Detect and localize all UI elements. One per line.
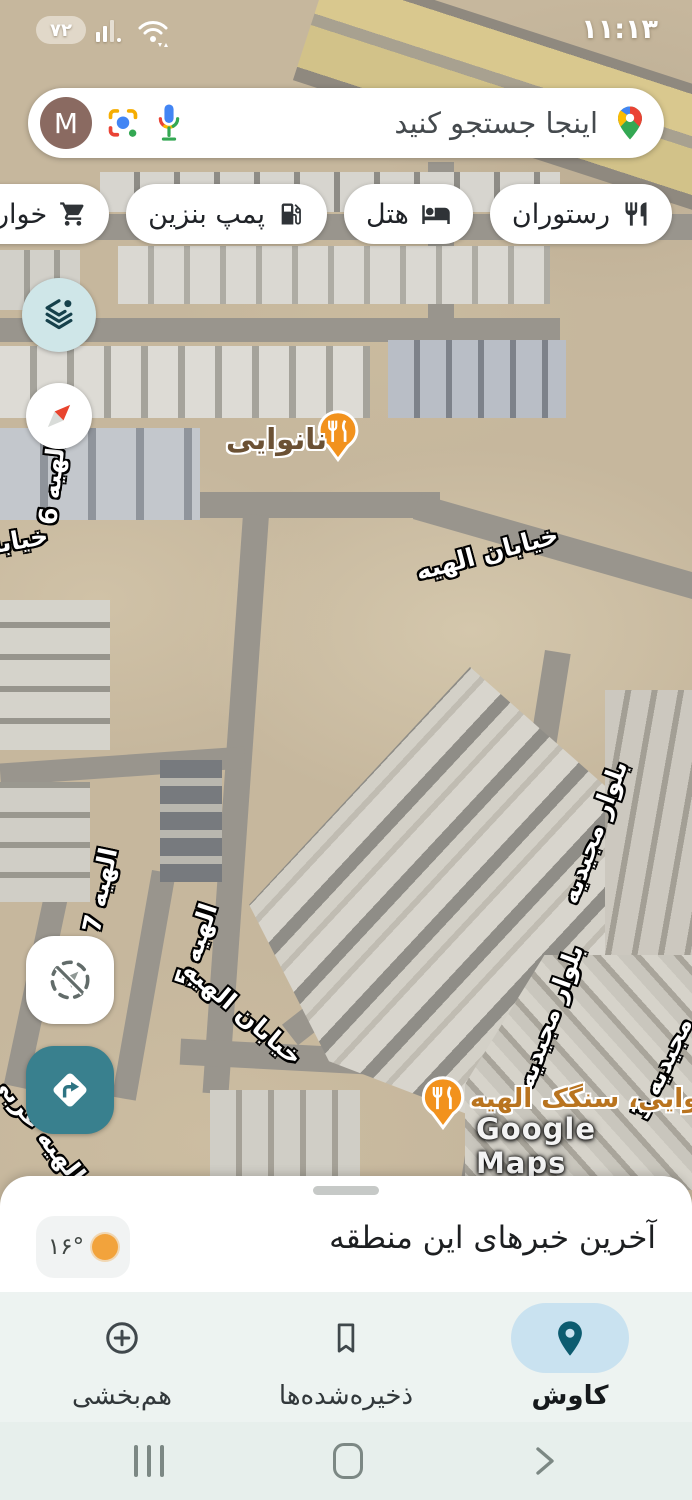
fuel-pump-icon [277, 200, 305, 228]
chip-label: پمپ بنزین [148, 199, 265, 230]
sun-icon [92, 1234, 118, 1260]
chip-restaurant[interactable]: رستوران [490, 184, 672, 244]
location-disabled-icon [44, 954, 96, 1006]
sangak-bakery-poi-label[interactable]: نانوایی، سنگک الهیه [470, 1084, 692, 1114]
explore-active-pill [511, 1303, 629, 1373]
chip-label: خواربارفروشی [0, 199, 47, 230]
clock: ۱۱:۱۳ [581, 14, 658, 45]
explore-pin-icon [554, 1320, 586, 1357]
weather-chip[interactable]: ۱۶° [36, 1216, 130, 1278]
chip-label: رستوران [512, 199, 610, 230]
bottom-navigation: کاوش ذخیره‌شده‌ها هم‌بخشی [0, 1292, 692, 1422]
my-location-button[interactable] [26, 936, 114, 1024]
contribute-icon-wrap [63, 1303, 181, 1373]
recents-button[interactable] [134, 1445, 164, 1477]
cellular-signal-icon [96, 20, 121, 42]
saved-icon-wrap [287, 1303, 405, 1373]
google-lens-icon[interactable] [106, 106, 140, 140]
status-bar: ۷۲ ۱۱:۱۳ [0, 14, 692, 54]
back-button[interactable] [532, 1445, 558, 1477]
sheet-title: آخرین خبرهای این منطقه [329, 1220, 656, 1256]
home-button[interactable] [333, 1443, 363, 1479]
google-maps-pin-icon [612, 105, 648, 141]
restaurant-icon [622, 200, 650, 228]
chip-gas-station[interactable]: پمپ بنزین [126, 184, 327, 244]
wifi-icon [136, 16, 170, 48]
nav-label-saved: ذخیره‌شده‌ها [279, 1381, 413, 1411]
google-maps-watermark: Google Maps [476, 1112, 692, 1180]
compass-needle-icon [38, 395, 80, 437]
nav-label-explore: کاوش [532, 1381, 609, 1411]
battery-indicator: ۷۲ [36, 16, 86, 44]
bookmark-icon [331, 1320, 361, 1356]
add-circle-icon [104, 1320, 140, 1356]
bakery-pin-icon [420, 1076, 466, 1130]
nav-tab-saved[interactable]: ذخیره‌شده‌ها [256, 1303, 436, 1411]
temperature-value: ۱۶° [48, 1234, 84, 1260]
search-input[interactable]: اینجا جستجو کنید [198, 106, 598, 140]
chip-grocery[interactable]: خواربارفروشی [0, 184, 109, 244]
bakery-poi-label[interactable]: نانوایی [226, 422, 327, 456]
directions-icon [42, 1062, 98, 1118]
layers-icon [40, 296, 78, 334]
directions-button[interactable] [26, 1046, 114, 1134]
chip-label: هتل [366, 199, 409, 230]
grocery-cart-icon [59, 200, 87, 228]
nav-label-contribute: هم‌بخشی [72, 1381, 172, 1411]
account-avatar[interactable]: M [40, 97, 92, 149]
nav-tab-contribute[interactable]: هم‌بخشی [32, 1303, 212, 1411]
android-navigation-bar [0, 1422, 692, 1500]
map-layers-button[interactable] [22, 278, 96, 352]
microphone-icon[interactable] [154, 102, 184, 144]
nav-tab-explore[interactable]: کاوش [480, 1303, 660, 1411]
category-chip-row: خواربارفروشی پمپ بنزین هتل رستوران [0, 184, 692, 244]
bottom-sheet[interactable]: آخرین خبرهای این منطقه ۱۶° [0, 1176, 692, 1292]
compass-button[interactable] [26, 383, 92, 449]
sheet-drag-handle[interactable] [313, 1186, 379, 1195]
hotel-bed-icon [421, 199, 451, 229]
sangak-bakery-poi-pin[interactable] [420, 1076, 466, 1134]
chip-hotel[interactable]: هتل [344, 184, 473, 244]
search-bar[interactable]: اینجا جستجو کنید M [28, 88, 664, 158]
